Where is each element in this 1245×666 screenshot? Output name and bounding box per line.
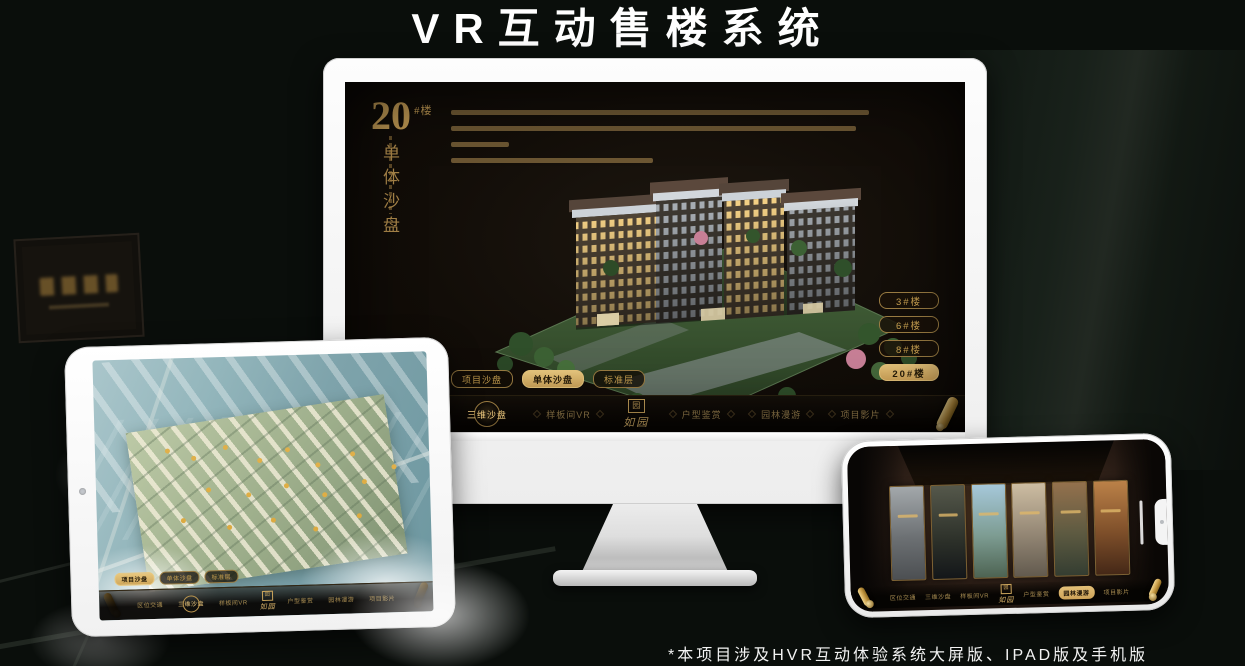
phone-camera-icon [1160,519,1164,523]
tablet-screen: 项目沙盘 单体沙盘 标准层 区位交通 三维沙盘 样板间VR 园 如园 户型鉴赏 … [92,351,433,620]
menu-item-showroom-vr[interactable]: 样板间VR [539,405,598,424]
hero-english-vertical-decor [389,136,392,214]
page-title: VR互动售楼系统 [0,0,1245,58]
scene-card[interactable] [1052,481,1089,576]
brand-logo-text: 如园 [260,602,276,612]
phone-screen: 区位交通 三维沙盘 样板间VR 园 如园 户型鉴赏 园林漫游 项目影片 [847,439,1169,612]
brand-logo-text: 如园 [998,594,1014,604]
scene-card-gallery [889,481,1130,580]
tablet-view-tab-group: 项目沙盘 单体沙盘 标准层 [114,570,238,586]
phone-menu-item-project-film[interactable]: 项目影片 [1103,586,1129,596]
tablet-tab-project-sandbox[interactable]: 项目沙盘 [114,572,154,586]
brand-logo[interactable]: 园 如园 [623,399,649,430]
tab-standard-floor[interactable]: 标准层 [593,370,645,388]
phone-mockup: 区位交通 三维沙盘 样板间VR 园 如园 户型鉴赏 园林漫游 项目影片 [841,433,1176,619]
menu-item-project-film[interactable]: 项目影片 [834,405,888,424]
monitor-stand-neck [580,504,730,576]
plaque-gold-text-blur [39,274,118,296]
tab-project-sandbox[interactable]: 项目沙盘 [451,370,513,388]
background-award-plaque [13,233,144,343]
page: VR互动售楼系统 20 #楼 单体沙盘 [0,0,1245,666]
tab-single-sandbox[interactable]: 单体沙盘 [522,370,584,388]
building-number-badges [165,449,170,454]
floor-button-6[interactable]: 6#楼 [879,316,939,333]
brand-seal-icon: 园 [628,399,645,413]
phone-menu-item-showroom-vr[interactable]: 样板间VR [960,590,989,600]
menu-item-floorplans[interactable]: 户型鉴赏 [675,405,729,424]
phone-menu-item-floorplans[interactable]: 户型鉴赏 [1023,588,1049,598]
tablet-menu-item-3d-sandbox[interactable]: 三维沙盘 [175,597,207,611]
scene-card[interactable] [1093,480,1130,575]
tablet-menu-item-garden-roam[interactable]: 园林漫游 [325,592,357,606]
building-number-suffix: #楼 [414,102,433,118]
plaque-subtext-blur [49,302,109,309]
phone-menu-item-3d-sandbox[interactable]: 三维沙盘 [925,591,951,601]
scene-card[interactable] [889,485,926,580]
floor-button-3[interactable]: 3#楼 [879,292,939,309]
tablet-menu-item-project-film[interactable]: 项目影片 [366,591,398,605]
description-text-line [451,110,869,115]
menu-item-garden-roam[interactable]: 园林漫游 [754,405,808,424]
tablet-menu-item-location[interactable]: 区位交通 [134,598,166,612]
brand-logo-text: 如园 [623,414,649,430]
brand-seal-icon: 园 [1000,583,1011,593]
floor-button-8[interactable]: 8#楼 [879,340,939,357]
tablet-mockup: 项目沙盘 单体沙盘 标准层 区位交通 三维沙盘 样板间VR 园 如园 户型鉴赏 … [64,337,456,638]
scene-card[interactable] [971,483,1008,578]
footnote-text: *本项目涉及HVR互动体验系统大屏版、IPAD版及手机版 [668,641,1148,665]
tablet-menu-item-showroom-vr[interactable]: 样板间VR [216,595,251,609]
background-aerial-photo [960,50,1245,470]
tablet-tab-single-sandbox[interactable]: 单体沙盘 [159,571,199,585]
menu-item-3d-sandbox[interactable]: 三维沙盘 [460,405,514,424]
monitor-stand-base [553,570,757,586]
tablet-brand-logo[interactable]: 园 如园 [259,591,276,612]
phone-menu-item-garden-roam[interactable]: 园林漫游 [1058,585,1094,599]
brand-seal-icon: 园 [262,591,273,601]
floor-button-20[interactable]: 20#楼 [879,364,939,381]
scene-card[interactable] [1011,482,1048,577]
phone-notch [1154,498,1167,544]
phone-brand-logo[interactable]: 园 如园 [998,583,1015,604]
view-tab-group: 项目沙盘 单体沙盘 标准层 [451,370,645,388]
tablet-tab-standard-floor[interactable]: 标准层 [204,570,238,584]
floor-button-group: 3#楼 6#楼 8#楼 20#楼 [879,292,939,381]
phone-menu-item-location[interactable]: 区位交通 [890,592,916,602]
tablet-menu-item-floorplans[interactable]: 户型鉴赏 [284,593,316,607]
scene-card[interactable] [930,484,967,579]
